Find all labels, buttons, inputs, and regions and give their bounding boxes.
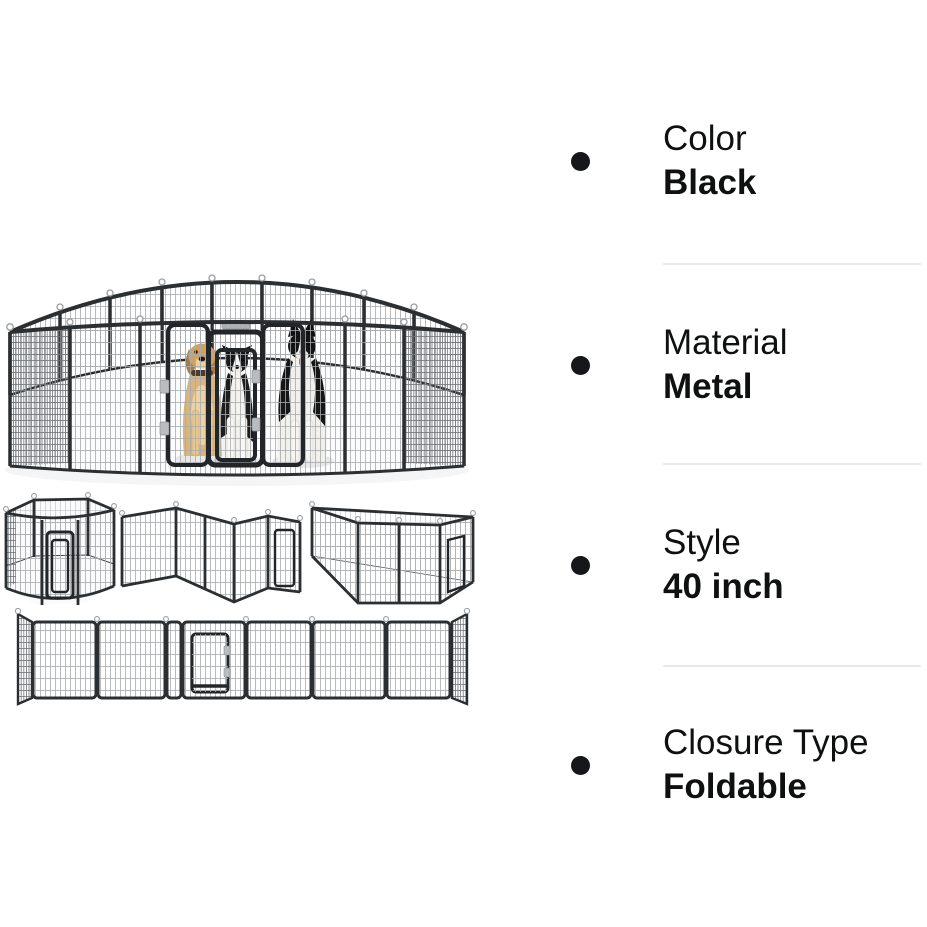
divider — [663, 263, 921, 265]
fact-label-style: Style — [663, 521, 784, 565]
list-bullet — [571, 556, 590, 575]
fact-label-color: Color — [663, 117, 756, 161]
product-facts-list: Color Black Material Metal Style 40 inch… — [0, 0, 927, 927]
list-bullet — [571, 152, 590, 171]
product-page: Color Black Material Metal Style 40 inch… — [0, 0, 927, 927]
fact-value-material: Metal — [663, 365, 787, 409]
fact-material: Material Metal — [663, 321, 787, 409]
fact-value-color: Black — [663, 161, 756, 205]
divider — [663, 463, 921, 465]
divider — [663, 665, 921, 667]
fact-label-material: Material — [663, 321, 787, 365]
fact-value-closure-type: Foldable — [663, 765, 869, 809]
list-bullet — [571, 756, 590, 775]
fact-closure-type: Closure Type Foldable — [663, 721, 869, 809]
fact-value-style: 40 inch — [663, 565, 784, 609]
fact-label-closure-type: Closure Type — [663, 721, 869, 765]
fact-color: Color Black — [663, 117, 756, 205]
fact-style: Style 40 inch — [663, 521, 784, 609]
list-bullet — [571, 356, 590, 375]
